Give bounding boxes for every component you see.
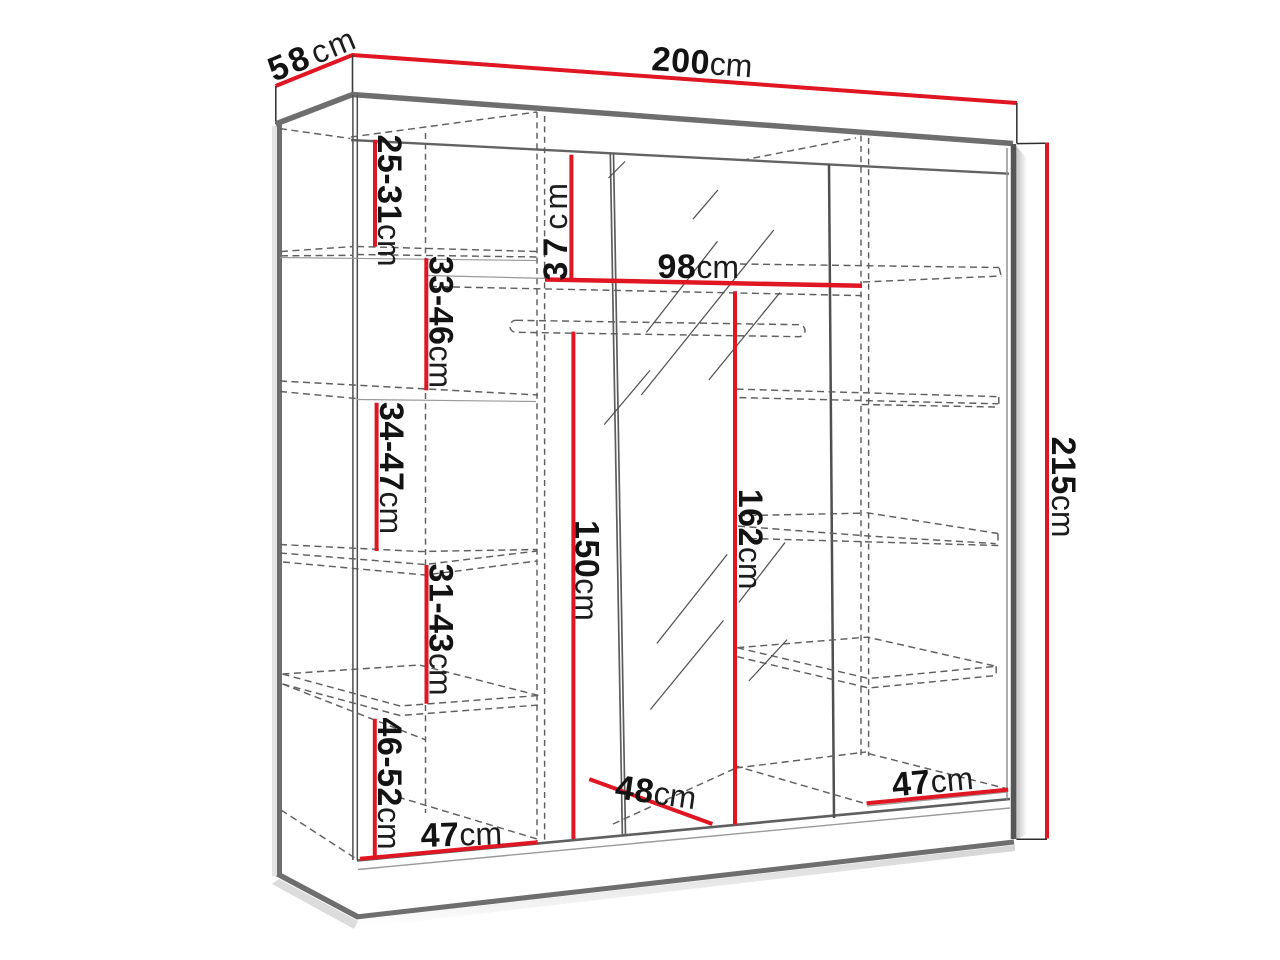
svg-text:162cm: 162cm — [731, 489, 769, 590]
svg-text:47cm: 47cm — [420, 814, 503, 855]
svg-text:150cm: 150cm — [568, 520, 606, 621]
svg-text:31-43cm: 31-43cm — [422, 564, 460, 696]
svg-text:58cm: 58cm — [263, 19, 363, 89]
svg-text:200cm: 200cm — [650, 40, 753, 85]
svg-text:37cm: 37cm — [537, 179, 575, 280]
svg-text:215cm: 215cm — [1044, 437, 1082, 538]
svg-text:98cm: 98cm — [658, 248, 739, 286]
svg-text:46-52cm: 46-52cm — [370, 718, 408, 850]
svg-text:33-46cm: 33-46cm — [422, 256, 460, 388]
svg-text:34-47cm: 34-47cm — [372, 402, 410, 534]
svg-text:47cm: 47cm — [890, 759, 975, 804]
svg-text:25-31cm: 25-31cm — [370, 135, 408, 267]
